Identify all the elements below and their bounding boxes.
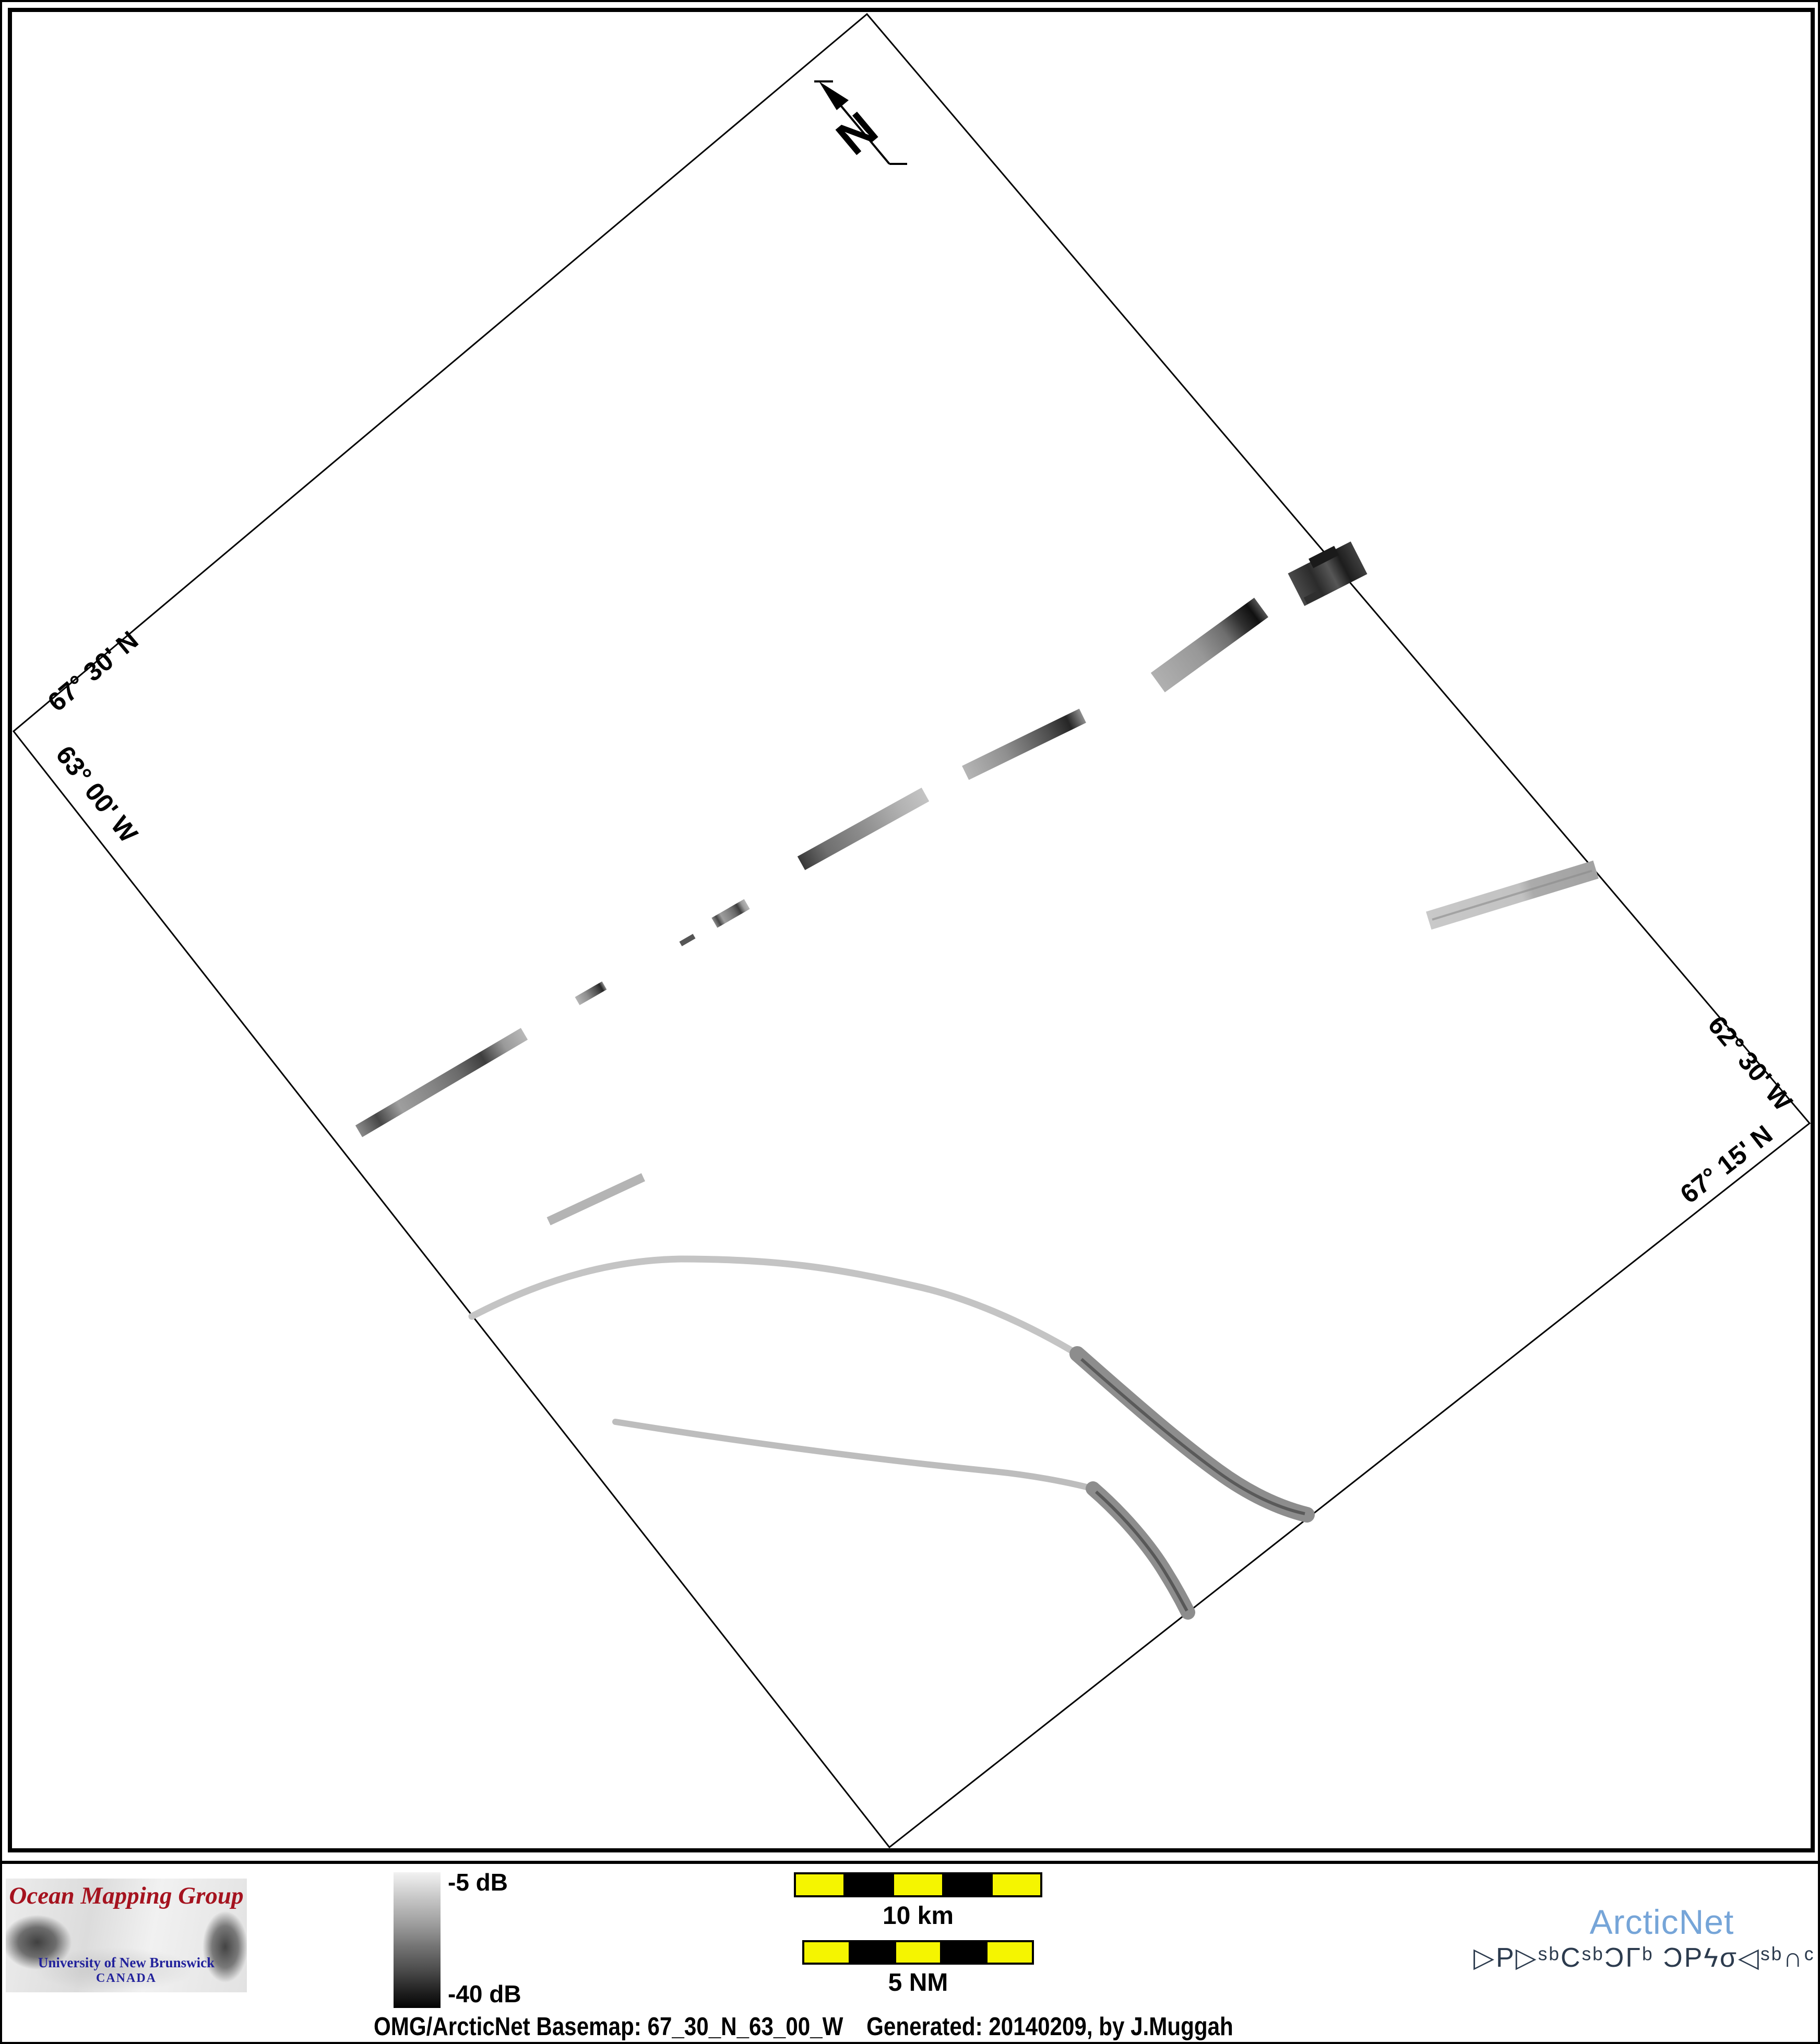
scalebar-segment xyxy=(895,1942,941,1963)
sonar-track-segment xyxy=(962,709,1086,780)
sonar-track-segment xyxy=(798,788,929,870)
basemap-caption-generated: Generated: 20140209, by J.Muggah xyxy=(866,2013,1233,2041)
sonar-track-segment xyxy=(1151,598,1268,692)
sonar-track-blob xyxy=(1286,538,1367,606)
scalebar-nm-label: 5 NM xyxy=(802,1968,1034,1997)
sonar-track-segment xyxy=(575,981,607,1005)
scalebar-km-label: 10 km xyxy=(794,1902,1042,1930)
colorbar-min-label: -40 dB xyxy=(448,1980,521,2008)
omg-logo-title: Ocean Mapping Group xyxy=(6,1882,247,1910)
scalebar-segment xyxy=(796,1874,843,1895)
omg-logo: Ocean Mapping Group University of New Br… xyxy=(6,1879,247,1992)
colorbar-max-label: -5 dB xyxy=(448,1868,508,1896)
omg-logo-subtitle: University of New Brunswick xyxy=(6,1955,247,1971)
basemap-caption-title: OMG/ArcticNet Basemap: 67_30_N_63_00_W xyxy=(374,2013,843,2041)
scalebar-segment xyxy=(991,1874,1040,1895)
north-arrow-icon: N xyxy=(814,81,907,165)
scalebar-segment xyxy=(940,1942,986,1963)
footer: Ocean Mapping Group University of New Br… xyxy=(2,1864,1820,2044)
scalebar-segment xyxy=(849,1942,895,1963)
scalebar-segment xyxy=(843,1874,893,1895)
arcticnet-logo: ArcticNet xyxy=(1578,1902,1745,1942)
sonar-track-curve xyxy=(615,1422,1093,1489)
map-canvas: 67° 30' N 63° 00' W 62° 30' W 67° 15' N … xyxy=(2,2,1820,2044)
page: 67° 30' N 63° 00' W 62° 30' W 67° 15' N … xyxy=(0,0,1820,2044)
sonar-track-curve-thick xyxy=(1093,1489,1188,1612)
sonar-track-curve xyxy=(472,1259,1077,1354)
scalebar-segment xyxy=(986,1942,1032,1963)
sonar-track-segment xyxy=(680,934,696,946)
arcticnet-inuktitut-text: ▷P▷ˢᵇCˢᵇƆΓᵇ ƆPϟσ◁ˢᵇ∩ᶜ xyxy=(1458,1942,1815,1974)
lat-label-bottom-right: 67° 15' N xyxy=(1675,1120,1778,1209)
sonar-track-segment xyxy=(355,1028,528,1137)
sonar-track-segment xyxy=(547,1173,645,1226)
backscatter-colorbar xyxy=(394,1872,441,2008)
north-label: N xyxy=(827,102,887,165)
scalebar-km xyxy=(794,1872,1042,1897)
lat-label-top-left: 67° 30' N xyxy=(42,625,144,717)
graticule-boundary xyxy=(14,14,1810,1847)
basemap-caption: OMG/ArcticNet Basemap: 67_30_N_63_00_WGe… xyxy=(374,2012,1233,2041)
scalebar-nm xyxy=(802,1940,1034,1965)
sonar-track-curve-thick xyxy=(1077,1354,1307,1515)
scalebar-segment xyxy=(804,1942,849,1963)
omg-logo-country: CANADA xyxy=(6,1971,247,1986)
lon-label-top-right: 62° 30' W xyxy=(1702,1011,1798,1117)
scalebar-segment xyxy=(893,1874,942,1895)
scalebar-segment xyxy=(942,1874,991,1895)
sonar-track-segment xyxy=(1426,861,1599,930)
sonar-track-segment xyxy=(711,899,750,928)
lon-label-bottom-left: 63° 00' W xyxy=(50,740,144,848)
